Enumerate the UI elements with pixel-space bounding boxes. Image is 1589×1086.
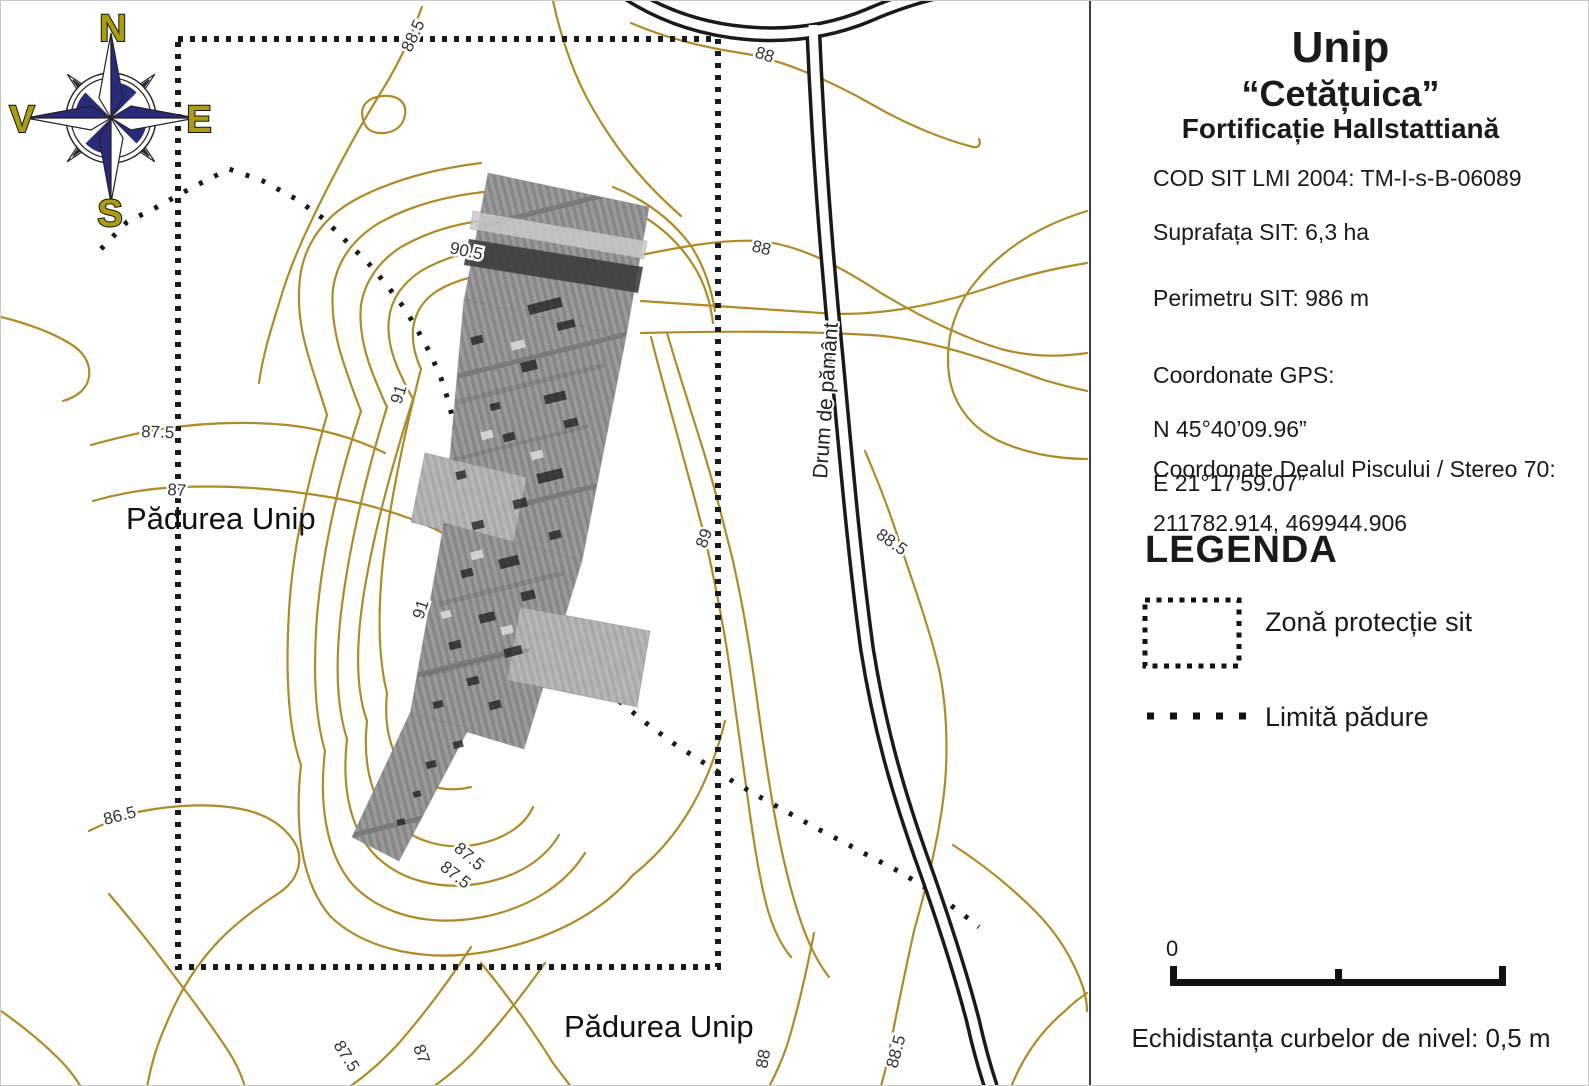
compass-rose: N E S V: [9, 8, 211, 235]
contour-label: 87.5: [141, 422, 175, 442]
forest-label-south: Pădurea Unip: [564, 1009, 754, 1044]
geophysics-survey-overlay: [352, 173, 650, 861]
scale-start-label: 0: [1166, 936, 1178, 962]
forest-label-west: Pădurea Unip: [126, 501, 316, 536]
legend-protection-label: Zonă protecție sit: [1265, 607, 1472, 638]
dirt-road: [627, 1, 991, 1086]
scale-tick-mid: [1335, 969, 1342, 979]
scale-bar: 0 100 m: [1170, 941, 1589, 996]
site-type: Fortificație Hallstattiană: [1091, 113, 1589, 145]
compass-east-label: E: [186, 99, 211, 141]
contour-label: 88.5: [873, 525, 911, 560]
scale-tick-left: [1170, 966, 1177, 986]
compass-west-label: V: [9, 99, 35, 141]
site-name: “Cetățuica”: [1091, 73, 1589, 115]
cod-sit: COD SIT LMI 2004: TM-I-s-B-06089: [1153, 165, 1522, 192]
contour-label: 88: [753, 43, 777, 67]
legend-forest-label: Limită pădure: [1265, 702, 1429, 733]
legend-protection-swatch: [1141, 596, 1243, 670]
compass-cardinal-points: [26, 33, 196, 203]
info-panel: Unip “Cetățuica” Fortificație Hallstatti…: [1089, 1, 1589, 1086]
contour-label: 88: [752, 1048, 774, 1070]
scale-tick-right: [1499, 966, 1506, 986]
contour-label: 88.5: [397, 17, 428, 55]
compass-north-label: N: [99, 8, 126, 50]
stereo-heading: Coordonate Dealul Piscului / Stereo 70:: [1153, 456, 1556, 483]
perimetru-sit: Perimetru SIT: 986 m: [1153, 285, 1369, 312]
scale-bar-line: [1170, 979, 1506, 986]
contour-label: 87: [167, 480, 187, 500]
legend-forest-swatch: [1147, 711, 1257, 721]
compass-south-label: S: [97, 193, 122, 235]
contour-label: 88: [750, 236, 773, 259]
gps-heading: Coordonate GPS:: [1153, 362, 1335, 389]
map-canvas: 88.5 88 88 90.5 91 91 87.5 87 86.5 87.5 …: [1, 1, 1089, 1086]
figure: 88.5 88 88 90.5 91 91 87.5 87 86.5 87.5 …: [0, 0, 1589, 1086]
legend-title: LEGENDA: [1145, 529, 1338, 572]
contour-label: 86.5: [101, 802, 138, 828]
suprafata-sit: Suprafața SIT: 6,3 ha: [1153, 219, 1369, 246]
equidistance-note: Echidistanța curbelor de nivel: 0,5 m: [1101, 1023, 1581, 1054]
page-title: Unip: [1091, 23, 1589, 73]
contour-label: 88.5: [883, 1033, 910, 1070]
contour-label: 87.5: [330, 1037, 364, 1075]
contour-label: 87: [409, 1042, 433, 1066]
contour-label: 89: [692, 526, 716, 550]
